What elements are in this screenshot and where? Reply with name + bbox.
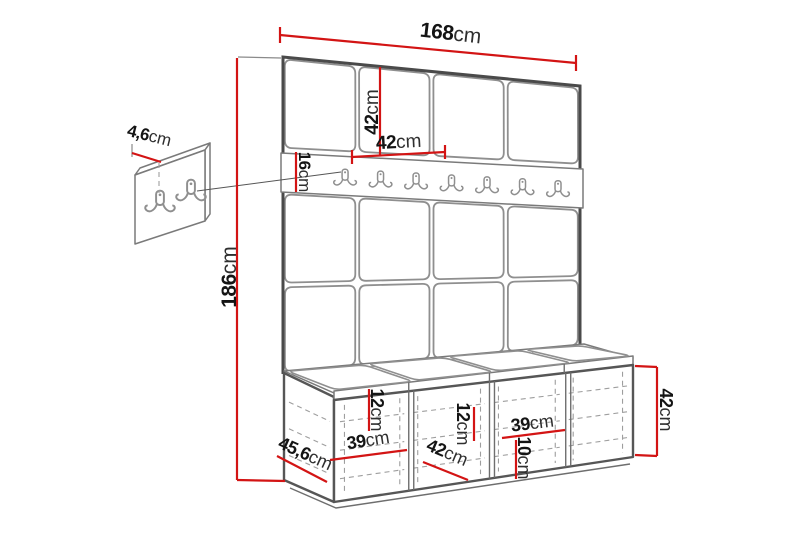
dimension-diagram: 168cm 186cm 42cm 42cm 16cm 4,6cm 12cm 39… <box>0 0 800 533</box>
dim-total-height: 186cm <box>218 57 285 481</box>
dim-rail-height: 16cm <box>295 152 314 193</box>
label-cushion-height-1: 12cm <box>367 388 387 431</box>
label-shelf-height: 10cm <box>514 436 534 479</box>
dim-panel-thickness: 4,6cm <box>125 121 173 162</box>
panel-grid <box>285 60 578 371</box>
dim-shelf-height: 10cm <box>514 436 534 479</box>
label-bench-height: 42cm <box>656 388 676 431</box>
label-rail-height: 16cm <box>295 152 314 193</box>
dim-cushion-height-1: 12cm <box>367 388 387 431</box>
label-cushion-height-2: 12cm <box>453 402 473 445</box>
label-total-height: 186cm <box>218 246 241 308</box>
diagram-canvas: 168cm 186cm 42cm 42cm 16cm 4,6cm 12cm 39… <box>0 0 800 533</box>
label-panel-height: 42cm <box>362 89 383 134</box>
wall-panel <box>281 57 583 374</box>
label-total-width: 168cm <box>419 19 483 49</box>
detail-panel-front-face <box>135 150 205 244</box>
label-panel-width: 42cm <box>375 131 422 154</box>
dim-cushion-height-2: 12cm <box>453 402 474 445</box>
dim-bench-height: 42cm <box>635 366 676 456</box>
